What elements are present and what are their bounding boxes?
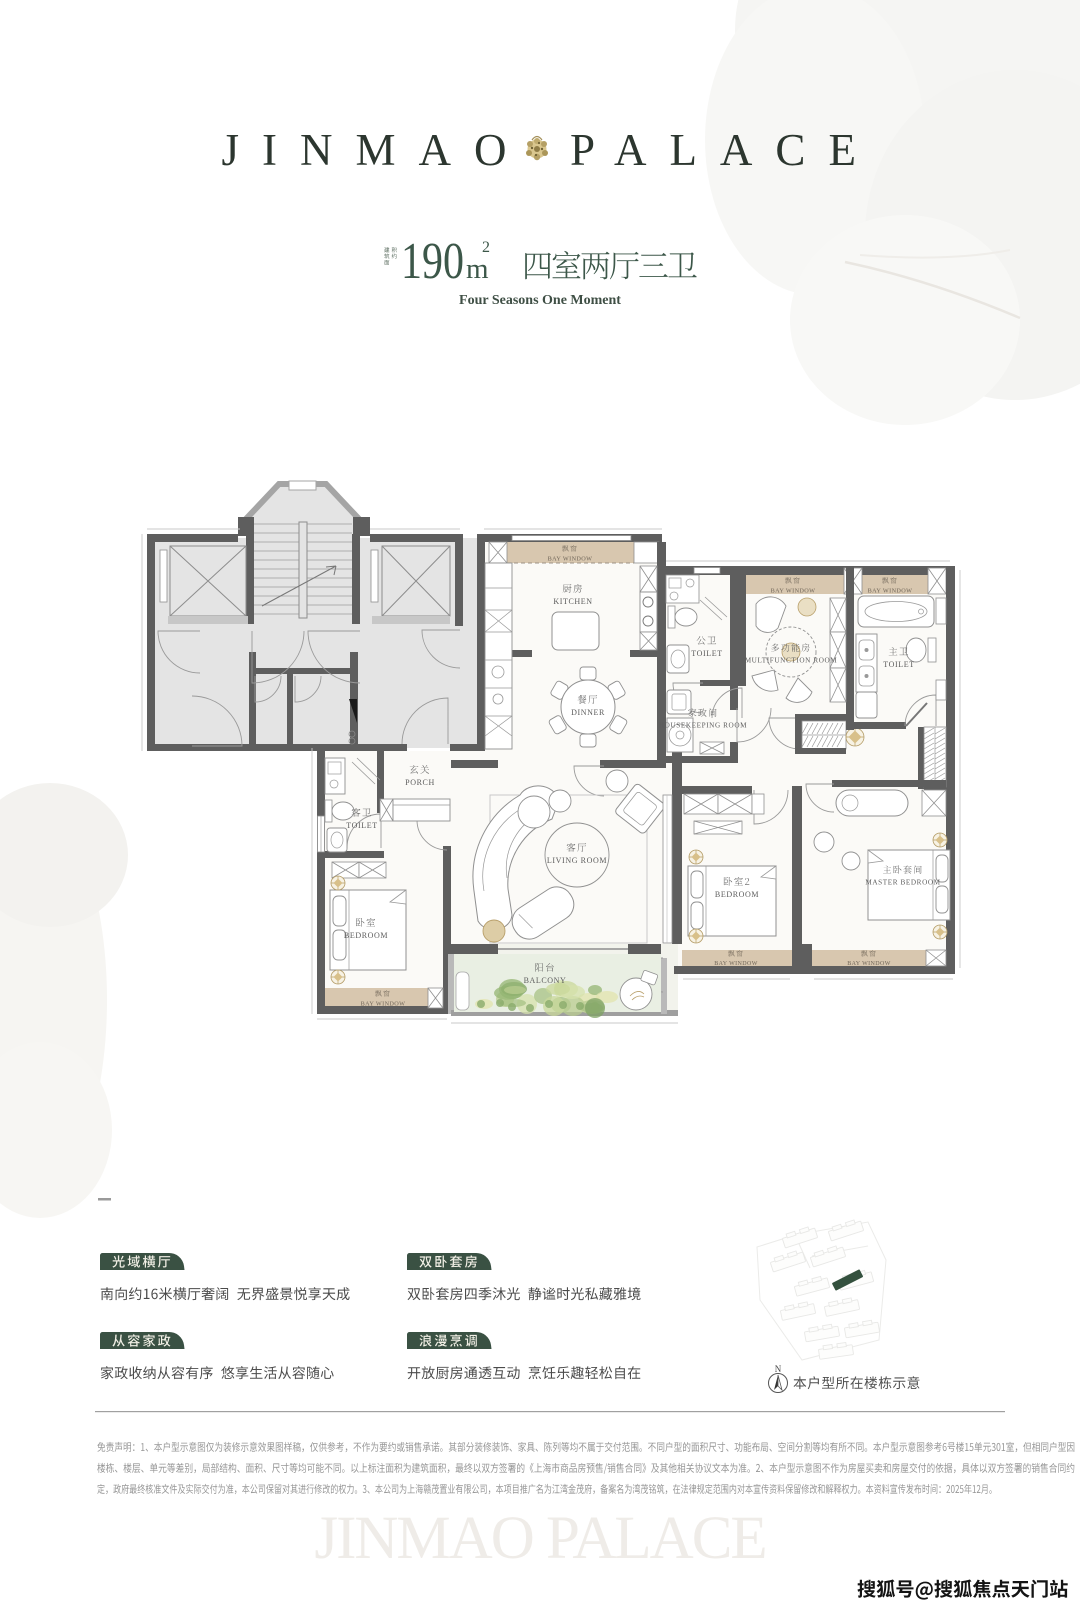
svg-text:BAY WINDOW: BAY WINDOW — [361, 1001, 406, 1008]
svg-text:LIVING ROOM: LIVING ROOM — [547, 856, 607, 865]
svg-text:BAY WINDOW: BAY WINDOW — [771, 588, 816, 595]
svg-text:BAY WINDOW: BAY WINDOW — [548, 556, 593, 563]
svg-text:TOILET: TOILET — [346, 821, 377, 830]
svg-text:m: m — [466, 253, 489, 285]
svg-text:BAY WINDOW: BAY WINDOW — [847, 961, 891, 967]
svg-text:JINMAO: JINMAO — [221, 125, 529, 175]
svg-text:BAY WINDOW: BAY WINDOW — [714, 961, 758, 967]
svg-text:PORCH: PORCH — [405, 778, 435, 787]
svg-text:BEDROOM: BEDROOM — [715, 890, 759, 899]
svg-text:BEDROOM: BEDROOM — [344, 931, 388, 940]
svg-text:MASTER BEDROOM: MASTER BEDROOM — [865, 878, 940, 886]
svg-text:JINMAO PALACE: JINMAO PALACE — [314, 1505, 765, 1572]
svg-text:PALACE: PALACE — [570, 125, 879, 175]
svg-text:BAY WINDOW: BAY WINDOW — [868, 588, 913, 595]
svg-text:TOILET: TOILET — [691, 649, 722, 658]
svg-text:2: 2 — [482, 239, 490, 256]
svg-text:N: N — [775, 1364, 782, 1374]
svg-text:HOUSEKEEPING ROOM: HOUSEKEEPING ROOM — [659, 721, 747, 729]
svg-text:KITCHEN: KITCHEN — [553, 597, 592, 606]
svg-text:TOILET: TOILET — [883, 660, 914, 669]
svg-text:Four Seasons One Moment: Four Seasons One Moment — [459, 293, 621, 308]
svg-text:MULTIFUNCTION ROOM: MULTIFUNCTION ROOM — [745, 656, 838, 664]
svg-text:BALCONY: BALCONY — [524, 976, 567, 985]
svg-text:DINNER: DINNER — [571, 708, 605, 717]
svg-text:190: 190 — [401, 233, 464, 290]
